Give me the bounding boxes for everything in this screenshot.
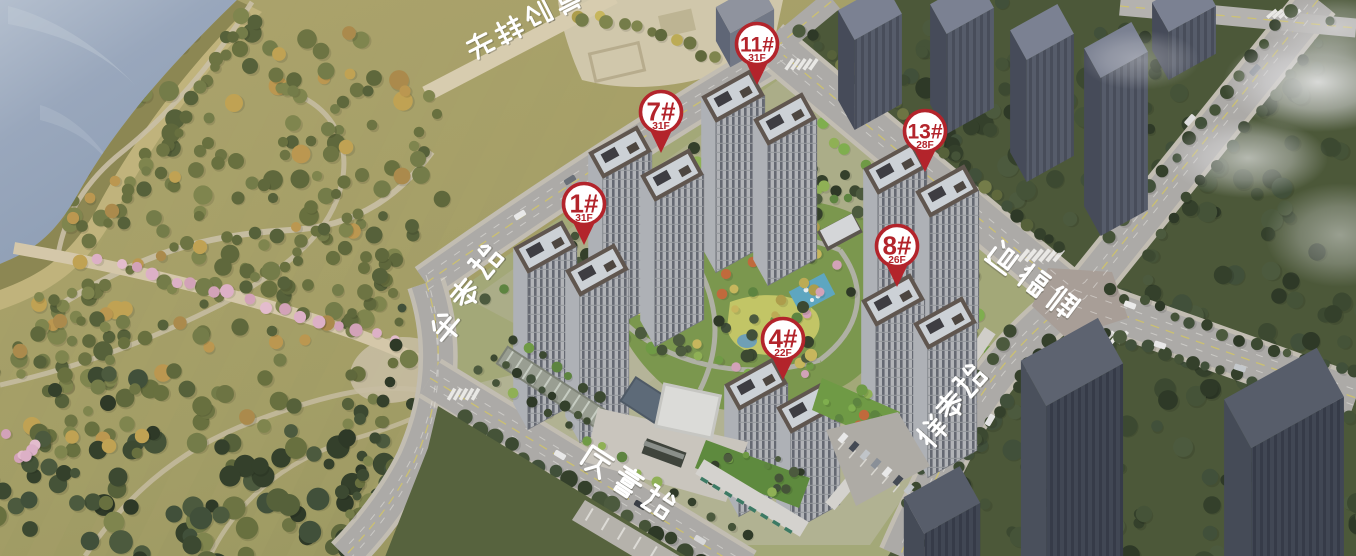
svg-text:28F: 28F xyxy=(916,140,934,151)
svg-text:31F: 31F xyxy=(748,53,766,64)
svg-text:31F: 31F xyxy=(652,121,670,132)
svg-text:22F: 22F xyxy=(774,348,792,359)
svg-text:31F: 31F xyxy=(575,213,593,224)
svg-text:26F: 26F xyxy=(888,255,906,266)
